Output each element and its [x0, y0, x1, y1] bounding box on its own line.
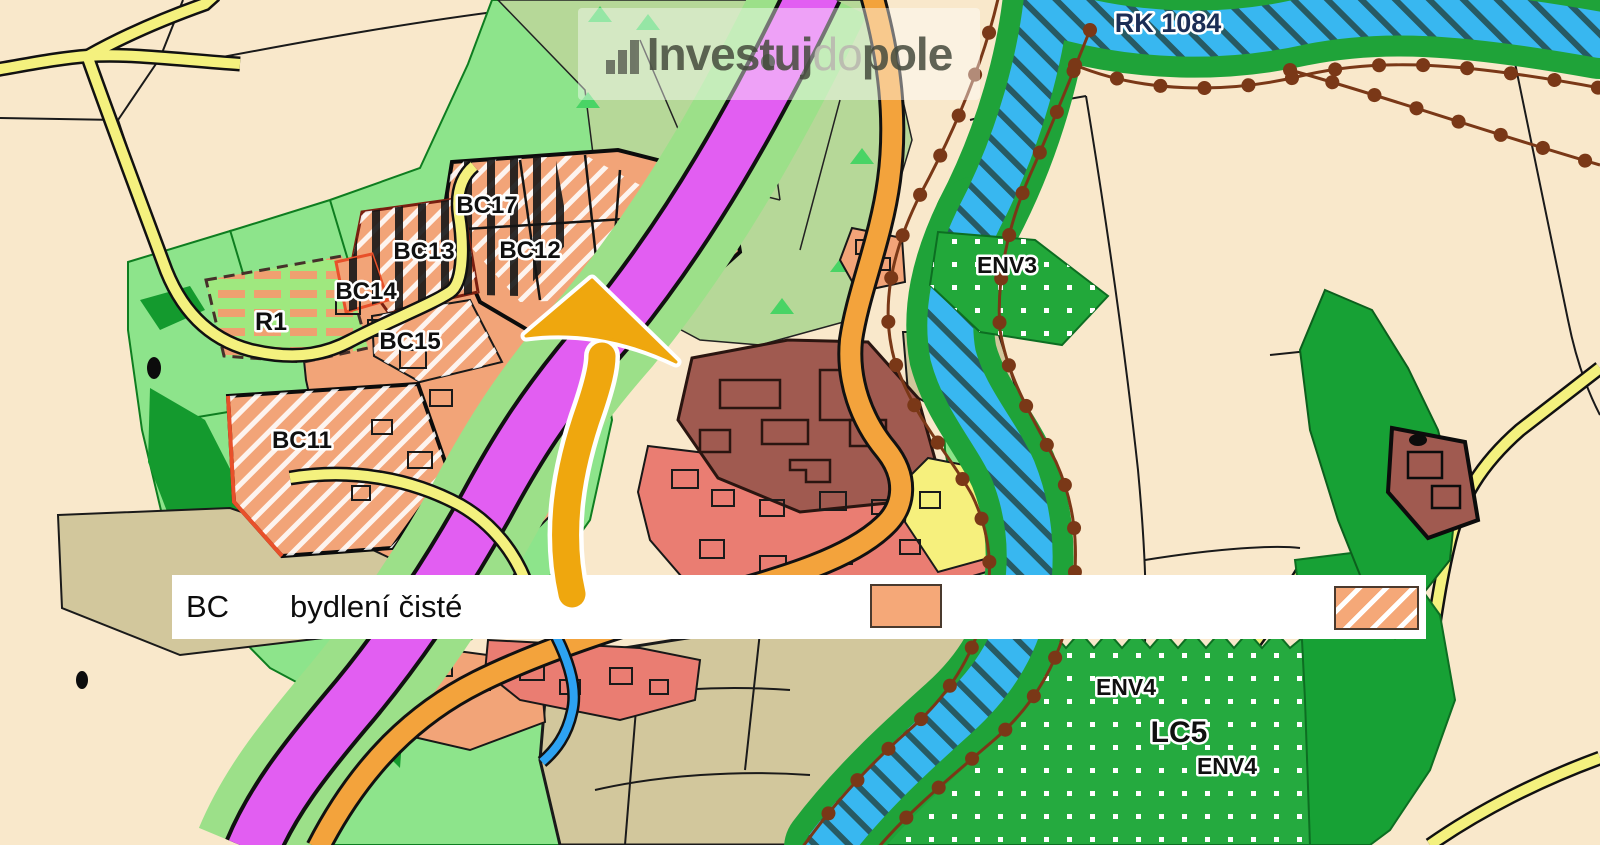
watermark-part2: do: [813, 28, 862, 80]
legend-zone-code: BC: [186, 589, 229, 625]
label-bc13: BC13: [393, 238, 454, 265]
label-env4-a: ENV4: [1096, 674, 1156, 700]
label-bc15: BC15: [379, 328, 440, 355]
label-rk1084: RK 1084: [1115, 8, 1222, 38]
legend-band: BC bydlení čisté: [172, 575, 1426, 639]
watermark-text: Investujdopole: [647, 27, 953, 81]
legend-swatch-solid: [870, 584, 942, 628]
zoning-map-page: RK 1084 BC17 BC13 BC12 BC14 R1 BC15 BC11…: [0, 0, 1600, 845]
watermark: Investujdopole: [578, 8, 980, 100]
label-r1: R1: [255, 308, 287, 336]
watermark-part3: pole: [862, 28, 953, 80]
label-bc17: BC17: [456, 192, 517, 219]
label-bc14: BC14: [335, 278, 397, 305]
label-bc11: BC11: [272, 427, 332, 454]
map-canvas[interactable]: RK 1084 BC17 BC13 BC12 BC14 R1 BC15 BC11…: [0, 0, 1600, 845]
label-bc12: BC12: [499, 237, 560, 264]
legend-swatch-hatched: [1334, 586, 1419, 630]
watermark-part1: Investuj: [647, 28, 813, 80]
bar-chart-icon: [606, 34, 639, 74]
label-env4-b: ENV4: [1197, 753, 1257, 779]
legend-zone-label: bydlení čisté: [290, 589, 462, 625]
label-lc5: LC5: [1151, 716, 1208, 749]
label-env3: ENV3: [977, 252, 1037, 278]
